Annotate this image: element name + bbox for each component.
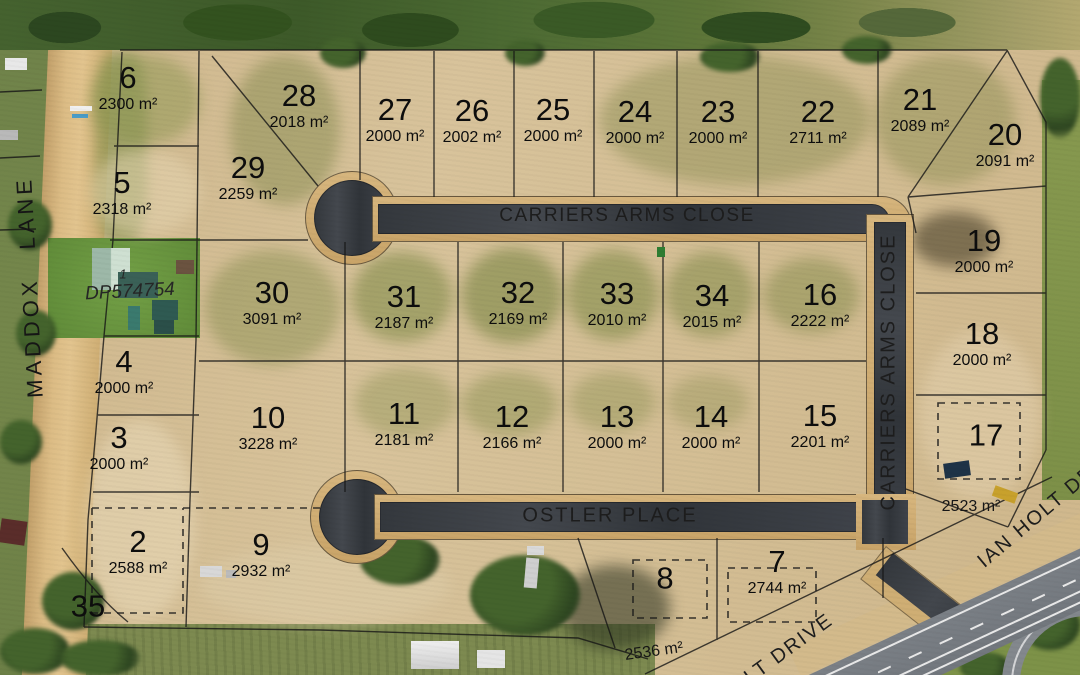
lot-28-area: 2018 m² xyxy=(270,114,329,132)
lot-9-area: 2932 m² xyxy=(232,563,291,581)
lot-34: 342015 m² xyxy=(683,280,742,332)
lot-17-number: 17 xyxy=(969,420,1003,451)
construction-material xyxy=(72,114,88,118)
lot-7-area: 2744 m² xyxy=(748,580,807,598)
lot-7: 72744 m² xyxy=(748,546,807,598)
lot-2-area: 2588 m² xyxy=(109,560,168,578)
lot-34-area: 2015 m² xyxy=(683,314,742,332)
lot-32-number: 32 xyxy=(489,277,548,308)
lot-21: 212089 m² xyxy=(891,84,950,136)
lot-27-number: 27 xyxy=(366,94,425,125)
lot-4: 42000 m² xyxy=(95,346,154,398)
lot-24-number: 24 xyxy=(606,96,665,127)
lot-10-area: 3228 m² xyxy=(239,436,298,454)
lot-32: 322169 m² xyxy=(489,277,548,329)
lot-8: 8 xyxy=(656,563,673,594)
lot-10: 103228 m² xyxy=(239,402,298,454)
lot-6-number: 6 xyxy=(99,62,158,93)
lot-16-area: 2222 m² xyxy=(791,313,850,331)
shed xyxy=(176,260,194,274)
lot-11-number: 11 xyxy=(375,398,434,429)
lot-31-area: 2187 m² xyxy=(375,315,434,333)
lot-35-number: 35 xyxy=(71,591,105,622)
lot-5: 52318 m² xyxy=(93,167,152,219)
shed xyxy=(152,300,178,320)
lot-25-area: 2000 m² xyxy=(524,128,583,146)
lot-19: 192000 m² xyxy=(955,225,1014,277)
lot-14: 142000 m² xyxy=(682,401,741,453)
lot-7-number: 7 xyxy=(748,546,807,577)
carriers-arms-close-label: CARRIERS ARMS CLOSE xyxy=(499,205,755,227)
lot-8-number: 8 xyxy=(656,563,673,594)
white-shed xyxy=(200,566,222,577)
lot-14-number: 14 xyxy=(682,401,741,432)
lot-26-area: 2002 m² xyxy=(443,129,502,147)
lot-3-number: 3 xyxy=(90,422,149,453)
white-shed xyxy=(477,650,505,668)
lot-12-number: 12 xyxy=(483,401,542,432)
lot-2-number: 2 xyxy=(109,526,168,557)
lot-15: 152201 m² xyxy=(791,400,850,452)
white-roof-building xyxy=(411,641,459,669)
lot-33: 332010 m² xyxy=(588,278,647,330)
lot-19-area: 2000 m² xyxy=(955,259,1014,277)
gray-shed xyxy=(0,130,18,140)
red-roof-building xyxy=(0,518,28,545)
lot-29-area: 2259 m² xyxy=(219,186,278,204)
lot-15-number: 15 xyxy=(791,400,850,431)
lot-27-area: 2000 m² xyxy=(366,128,425,146)
white-shed xyxy=(5,58,27,70)
lot-20-area: 2091 m² xyxy=(976,153,1035,171)
aerial-subdivision-map: 62300 m² 52318 m² 282018 m² 292259 m² 27… xyxy=(0,0,1080,675)
lot-17-area: 2523 m² xyxy=(942,498,1001,516)
lot-28: 282018 m² xyxy=(270,80,329,132)
carriers-arms-close-vertical-label: CARRIERS ARMS CLOSE xyxy=(878,234,901,511)
lot-16-number: 16 xyxy=(791,279,850,310)
lot-21-area: 2089 m² xyxy=(891,118,950,136)
lot-6: 62300 m² xyxy=(99,62,158,114)
lot-18: 182000 m² xyxy=(953,318,1012,370)
caravan xyxy=(527,546,544,555)
construction-material xyxy=(70,106,92,111)
lot-20: 202091 m² xyxy=(976,119,1035,171)
lot-2: 22588 m² xyxy=(109,526,168,578)
lot-33-number: 33 xyxy=(588,278,647,309)
lot-23: 232000 m² xyxy=(689,96,748,148)
lot-33-area: 2010 m² xyxy=(588,312,647,330)
lot-30-area: 3091 m² xyxy=(243,311,302,329)
lot-31-number: 31 xyxy=(375,281,434,312)
lot-32-area: 2169 m² xyxy=(489,311,548,329)
lot-16: 162222 m² xyxy=(791,279,850,331)
lot-17: 17 xyxy=(969,420,1003,451)
shed xyxy=(128,306,140,330)
portaloo xyxy=(657,247,665,257)
lot-26-number: 26 xyxy=(443,95,502,126)
lot-10-number: 10 xyxy=(239,402,298,433)
lot-13-number: 13 xyxy=(588,401,647,432)
lot-6-area: 2300 m² xyxy=(99,96,158,114)
lot-31: 312187 m² xyxy=(375,281,434,333)
caravan xyxy=(524,557,540,588)
lot-20-number: 20 xyxy=(976,119,1035,150)
lot-19-number: 19 xyxy=(955,225,1014,256)
lot-14-area: 2000 m² xyxy=(682,435,741,453)
lot-30-number: 30 xyxy=(243,277,302,308)
lot-3-area: 2000 m² xyxy=(90,456,149,474)
lot-25: 252000 m² xyxy=(524,94,583,146)
lot-13: 132000 m² xyxy=(588,401,647,453)
lot-3: 32000 m² xyxy=(90,422,149,474)
lot-35: 35 xyxy=(71,591,105,622)
lot-12: 122166 m² xyxy=(483,401,542,453)
lot-5-number: 5 xyxy=(93,167,152,198)
lot-13-area: 2000 m² xyxy=(588,435,647,453)
ostler-place-label: OSTLER PLACE xyxy=(522,505,697,528)
lot-27: 272000 m² xyxy=(366,94,425,146)
lot-34-number: 34 xyxy=(683,280,742,311)
lot-18-area: 2000 m² xyxy=(953,352,1012,370)
lot-22-area: 2711 m² xyxy=(789,130,847,148)
lot-23-area: 2000 m² xyxy=(689,130,748,148)
lot-25-number: 25 xyxy=(524,94,583,125)
lot-24-area: 2000 m² xyxy=(606,130,665,148)
parcel-lot-number: 1 xyxy=(119,267,126,282)
lot-23-number: 23 xyxy=(689,96,748,127)
lot-9: 92932 m² xyxy=(232,529,291,581)
lot-11-area: 2181 m² xyxy=(375,432,434,450)
lot-22: 222711 m² xyxy=(789,96,847,148)
lot-18-number: 18 xyxy=(953,318,1012,349)
lot-30: 303091 m² xyxy=(243,277,302,329)
lot-15-area: 2201 m² xyxy=(791,434,850,452)
lot-12-area: 2166 m² xyxy=(483,435,542,453)
lot-22-number: 22 xyxy=(789,96,847,127)
lot-29: 292259 m² xyxy=(219,152,278,204)
lot-4-number: 4 xyxy=(95,346,154,377)
lot-24: 242000 m² xyxy=(606,96,665,148)
lot-9-number: 9 xyxy=(232,529,291,560)
lot-4-area: 2000 m² xyxy=(95,380,154,398)
lot-21-number: 21 xyxy=(891,84,950,115)
lot-11: 112181 m² xyxy=(375,398,434,450)
lot-29-number: 29 xyxy=(219,152,278,183)
lot-28-number: 28 xyxy=(270,80,329,111)
parcel-plan-number: DP574754 xyxy=(85,279,176,306)
lot-26: 262002 m² xyxy=(443,95,502,147)
shed xyxy=(154,320,174,334)
lot-5-area: 2318 m² xyxy=(93,201,152,219)
